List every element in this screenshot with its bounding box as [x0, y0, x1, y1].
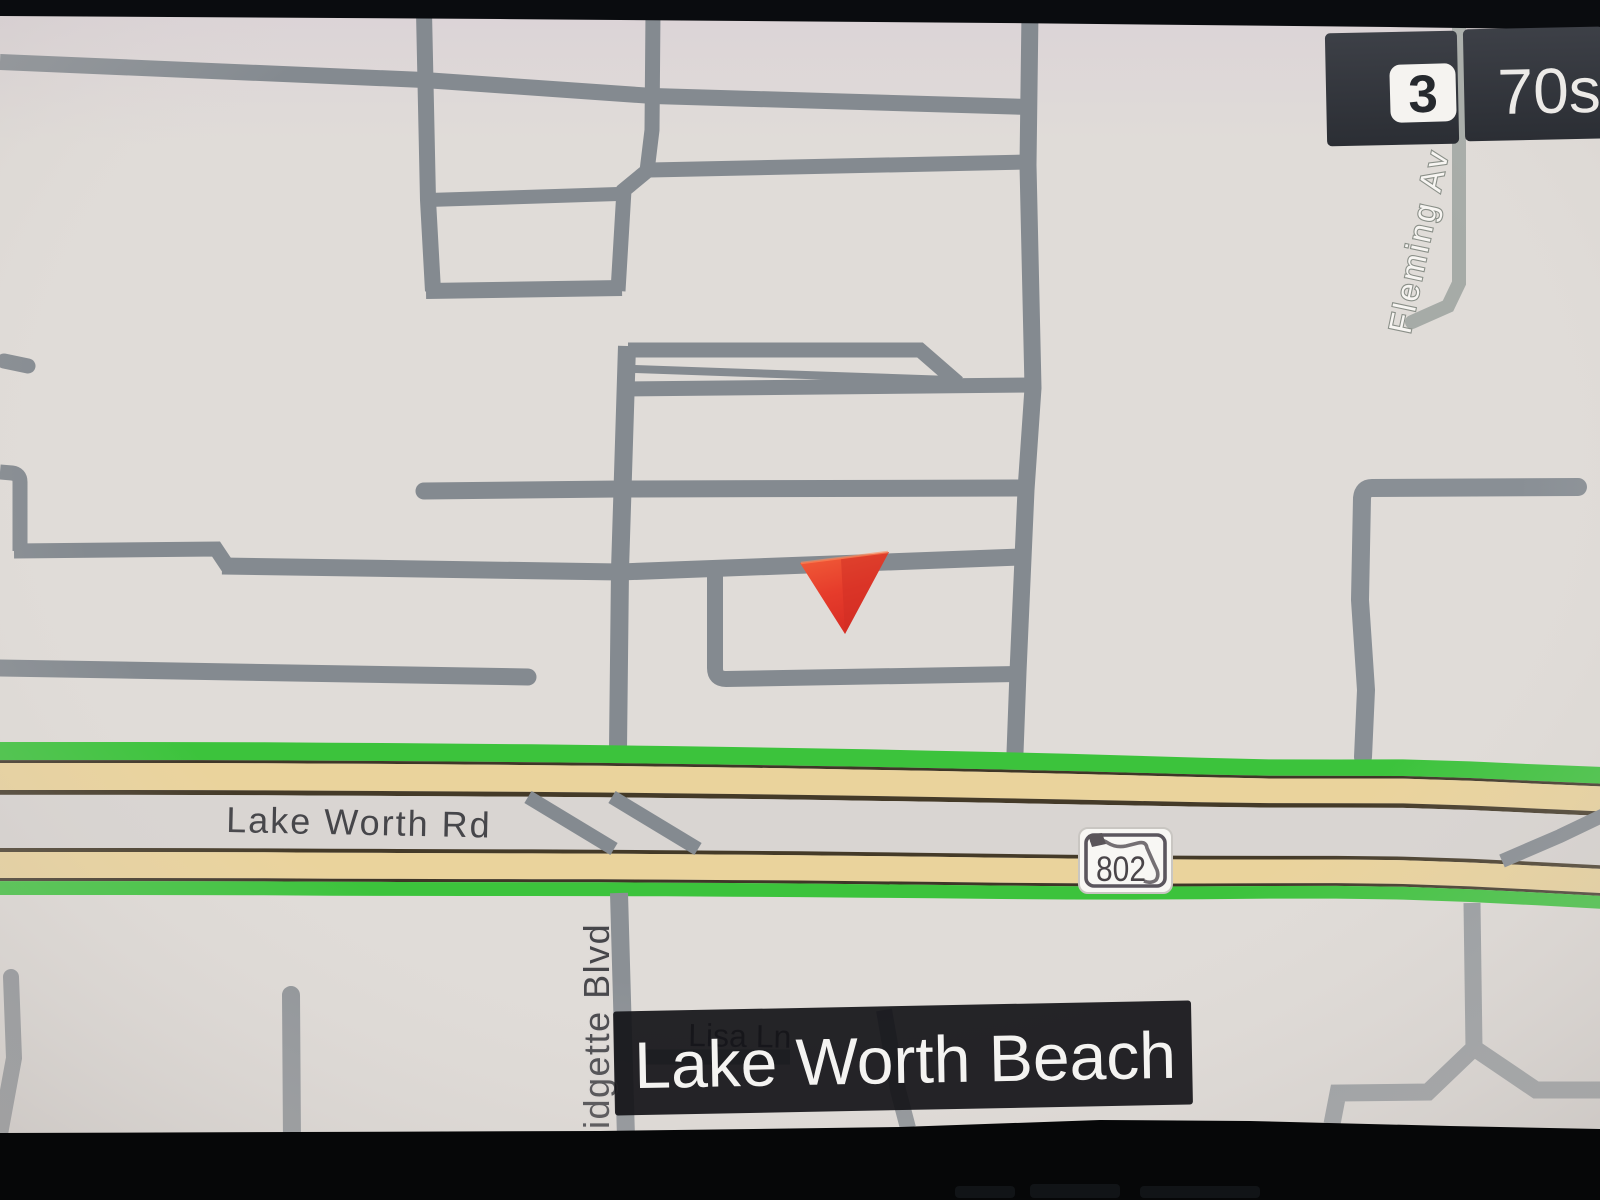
- svg-text:3: 3: [1408, 65, 1439, 125]
- svg-text:70s: 70s: [1497, 54, 1600, 128]
- svg-text:Lake Worth Beach: Lake Worth Beach: [633, 1018, 1176, 1102]
